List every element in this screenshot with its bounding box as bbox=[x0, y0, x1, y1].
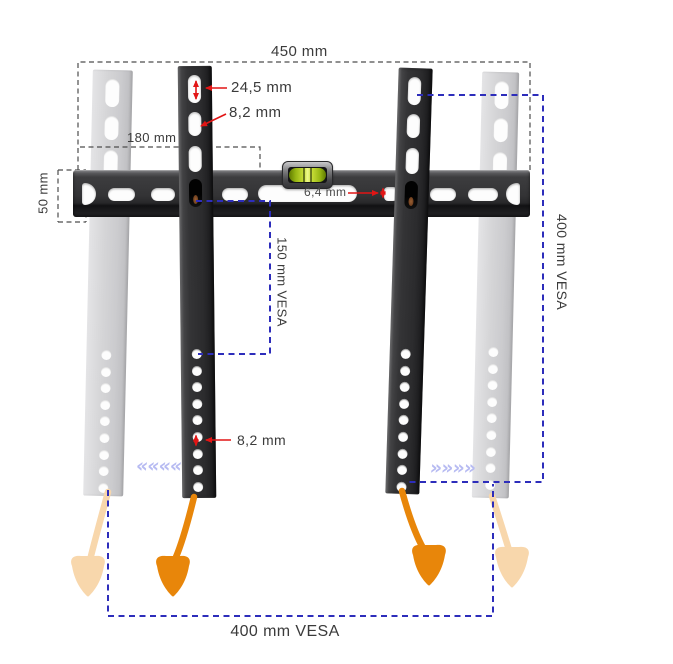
chevrons-left-icon: «««« bbox=[134, 455, 182, 477]
label-400mm-vesa-right: 400 mm VESA bbox=[554, 214, 570, 310]
chevrons-right-icon: »»»» bbox=[428, 457, 476, 479]
wall-mount-dimension-diagram: 450 mm 24,5 mm 8,2 mm 180 mm 50 mm 6,4 m… bbox=[0, 0, 673, 664]
label-450mm: 450 mm bbox=[271, 43, 328, 60]
label-400mm-vesa-bottom: 400 mm VESA bbox=[230, 623, 339, 641]
label-50mm: 50 mm bbox=[36, 172, 51, 214]
label-150mm-vesa: 150 mm VESA bbox=[275, 237, 290, 327]
label-6-4mm: 6,4 mm bbox=[304, 185, 346, 199]
strap-stem-right bbox=[402, 491, 423, 548]
pull-straps bbox=[71, 491, 529, 597]
strap-stem-ghost-left bbox=[91, 492, 108, 556]
strap-stem-left bbox=[176, 497, 194, 557]
dim-line-150-vesa bbox=[196, 201, 270, 354]
annotation-overlay bbox=[0, 0, 673, 664]
label-24-5mm: 24,5 mm bbox=[231, 79, 292, 96]
strap-tab-ghost-left bbox=[71, 556, 105, 597]
strap-tab-ghost-right bbox=[495, 547, 529, 588]
strap-tab-right bbox=[412, 545, 446, 586]
red-callout-arrows bbox=[196, 81, 383, 446]
vesa-dimension-lines bbox=[108, 95, 543, 616]
label-180mm: 180 mm bbox=[127, 130, 176, 145]
strap-stem-ghost-right bbox=[492, 496, 509, 550]
label-8-2mm-bottom: 8,2 mm bbox=[237, 432, 286, 448]
label-8-2mm-top: 8,2 mm bbox=[229, 104, 281, 121]
dim-line-400-vesa-right bbox=[407, 95, 543, 482]
strap-tab-left bbox=[156, 556, 190, 597]
